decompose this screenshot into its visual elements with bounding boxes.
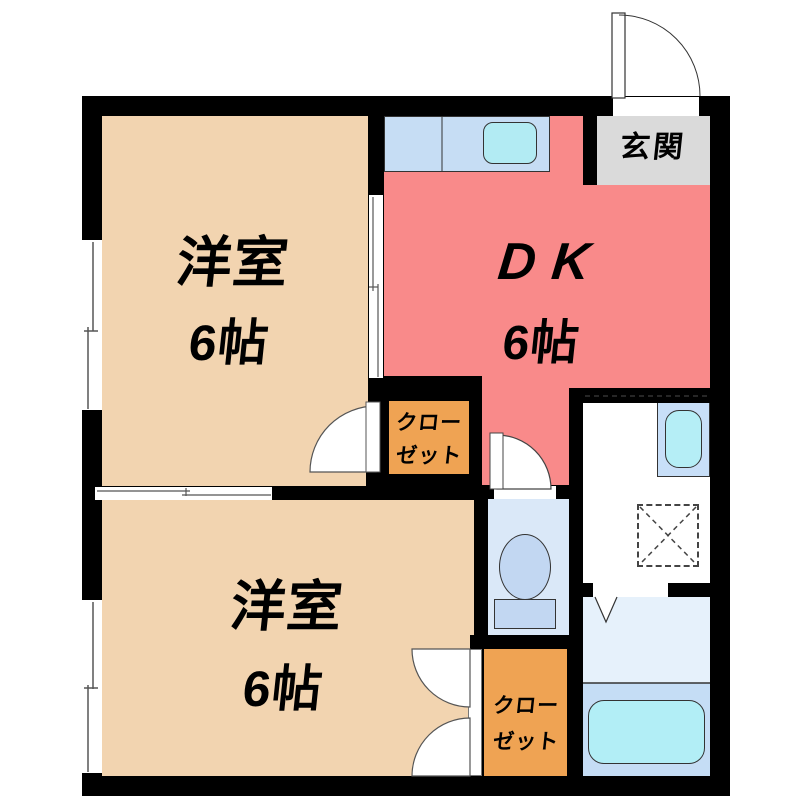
label-closet-top-line2: ゼット xyxy=(395,446,463,467)
room1-door-leaf xyxy=(366,402,380,472)
slider-room1-dk-glyph xyxy=(369,197,378,377)
label-western-top-name: 洋室 xyxy=(174,236,292,291)
toilet-door-leaf xyxy=(490,433,503,489)
bathroom-folding-door-icon xyxy=(595,597,617,622)
door-and-symbol-layer xyxy=(0,0,800,800)
label-closet-bottom-line1: クロー xyxy=(492,696,560,717)
label-closet-bottom-line2: ゼット xyxy=(492,732,560,753)
entrance-door-arc xyxy=(619,15,700,96)
label-western-top-size: 6帖 xyxy=(186,318,271,368)
slider-room-room-glyph xyxy=(97,488,271,496)
closet2-door-arc-bottom xyxy=(412,718,470,776)
entrance-door-leaf xyxy=(612,13,625,98)
label-western-bottom-name: 洋室 xyxy=(228,580,346,635)
window-lower-glyph xyxy=(84,602,98,772)
toilet-door-arc xyxy=(497,435,551,489)
label-western-bottom-size: 6帖 xyxy=(240,664,325,714)
label-dk-size: 6帖 xyxy=(500,320,582,368)
closet2-door-arc-top xyxy=(412,649,470,707)
floor-plan: 洋室 6帖 洋室 6帖 DK 6帖 玄関 クロー ゼット クロー ゼット xyxy=(0,0,800,800)
window-upper-glyph xyxy=(84,242,98,409)
label-dk-name: DK xyxy=(496,236,609,288)
label-closet-top-line1: クロー xyxy=(395,413,463,434)
label-entrance: 玄関 xyxy=(618,133,687,163)
